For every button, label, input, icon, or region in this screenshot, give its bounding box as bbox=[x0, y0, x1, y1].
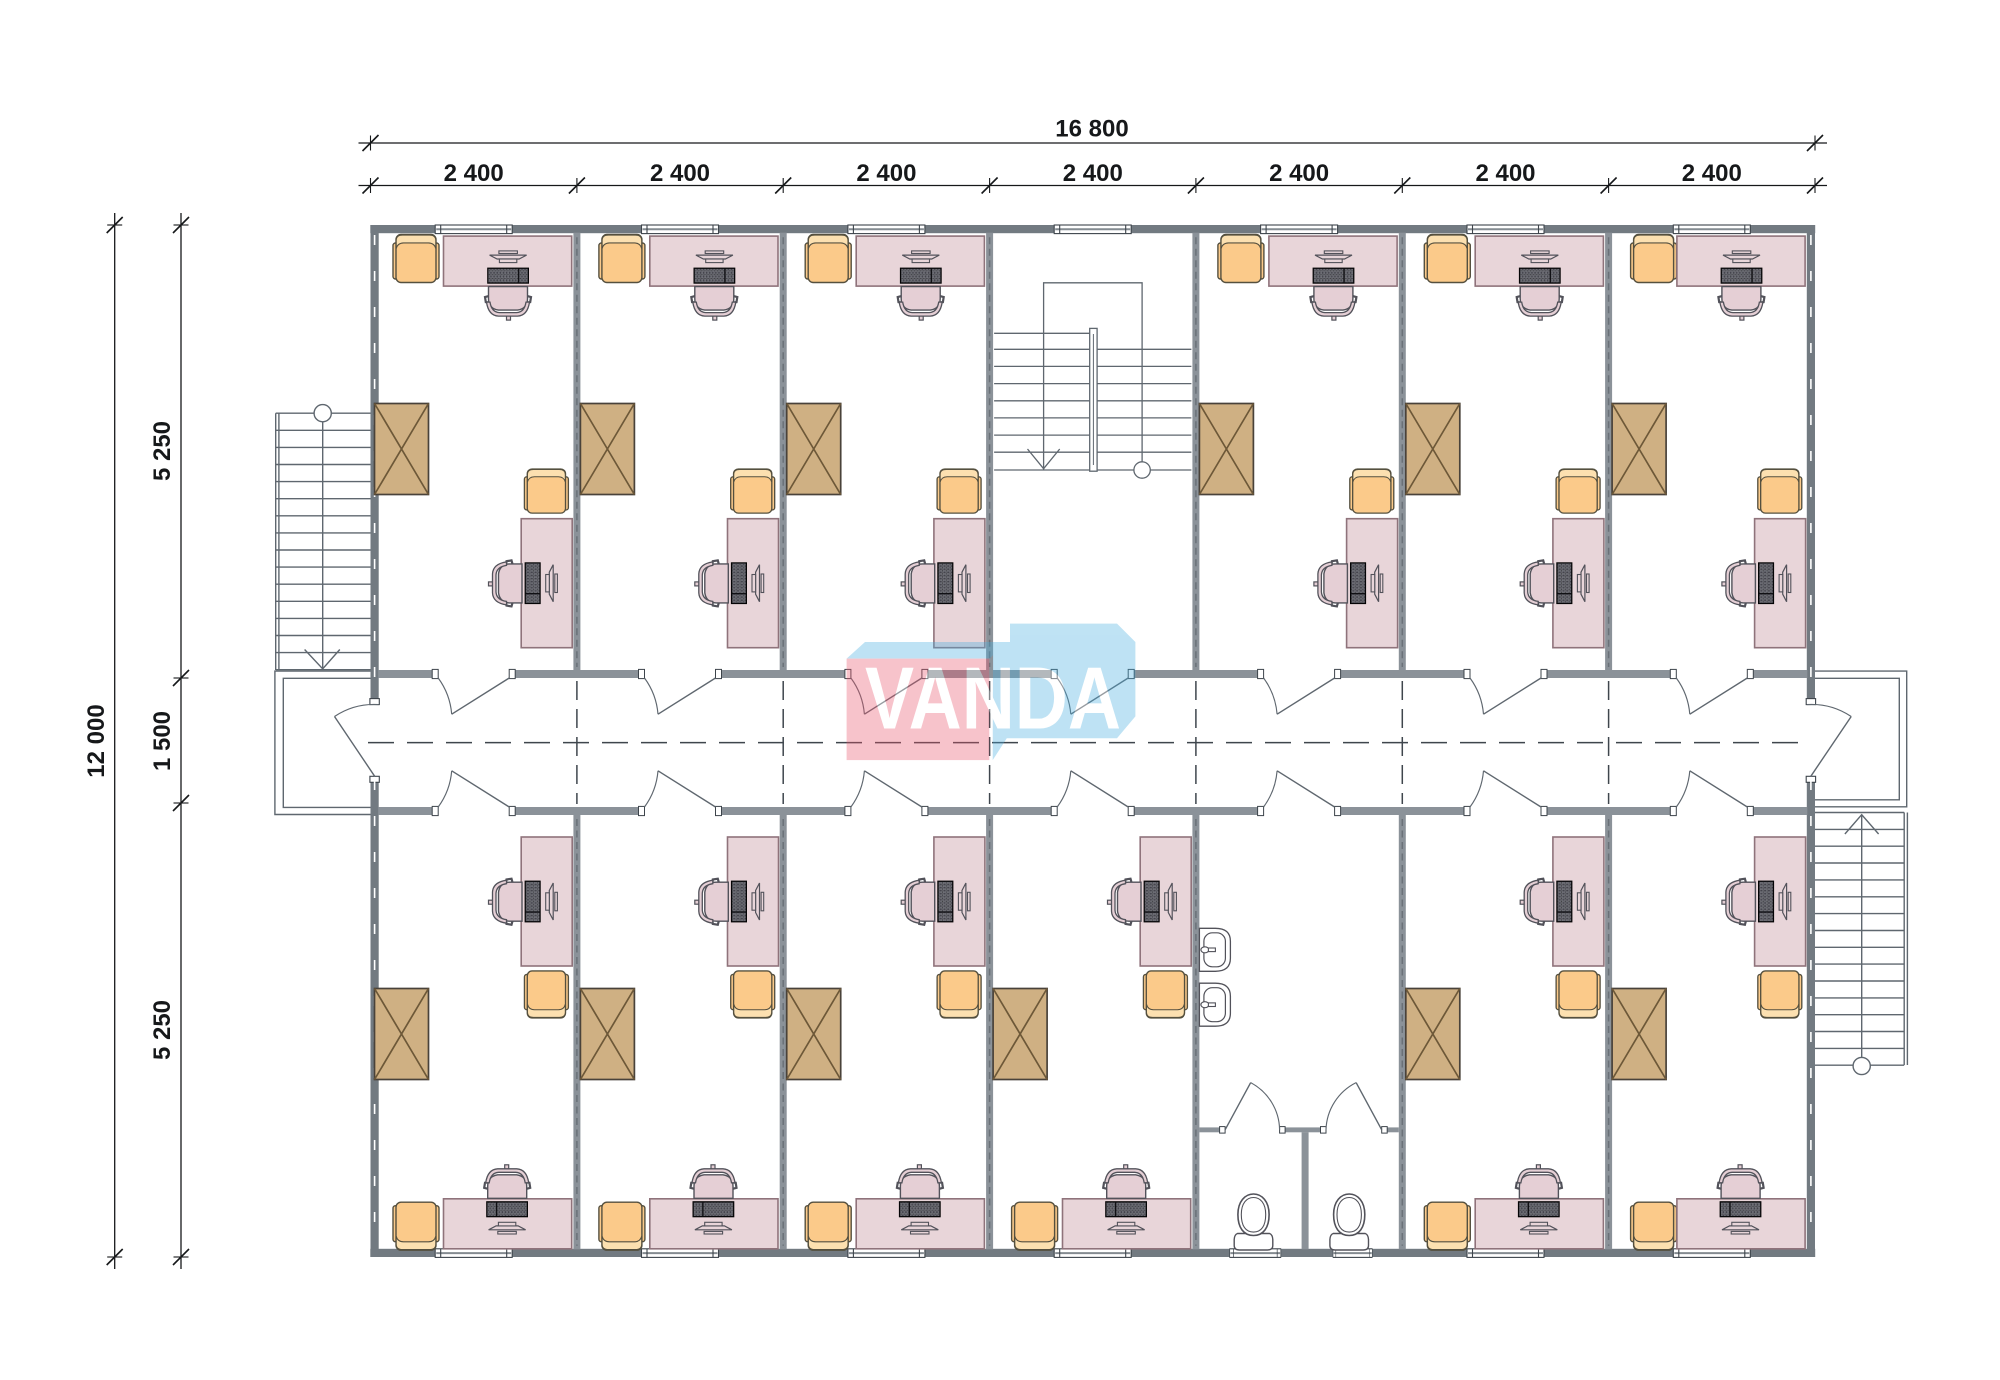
svg-text:2 400: 2 400 bbox=[1475, 160, 1535, 187]
svg-text:5 250: 5 250 bbox=[149, 421, 176, 481]
svg-text:2 400: 2 400 bbox=[650, 160, 710, 187]
svg-text:12 000: 12 000 bbox=[83, 704, 110, 777]
svg-text:2 400: 2 400 bbox=[1063, 160, 1123, 187]
svg-text:VANDA: VANDA bbox=[865, 649, 1121, 748]
svg-text:2 400: 2 400 bbox=[1269, 160, 1329, 187]
svg-text:16 800: 16 800 bbox=[1055, 116, 1128, 143]
svg-text:2 400: 2 400 bbox=[444, 160, 504, 187]
svg-text:5 250: 5 250 bbox=[149, 1000, 176, 1060]
svg-text:2 400: 2 400 bbox=[856, 160, 916, 187]
svg-text:2 400: 2 400 bbox=[1682, 160, 1742, 187]
svg-text:1 500: 1 500 bbox=[149, 711, 176, 771]
